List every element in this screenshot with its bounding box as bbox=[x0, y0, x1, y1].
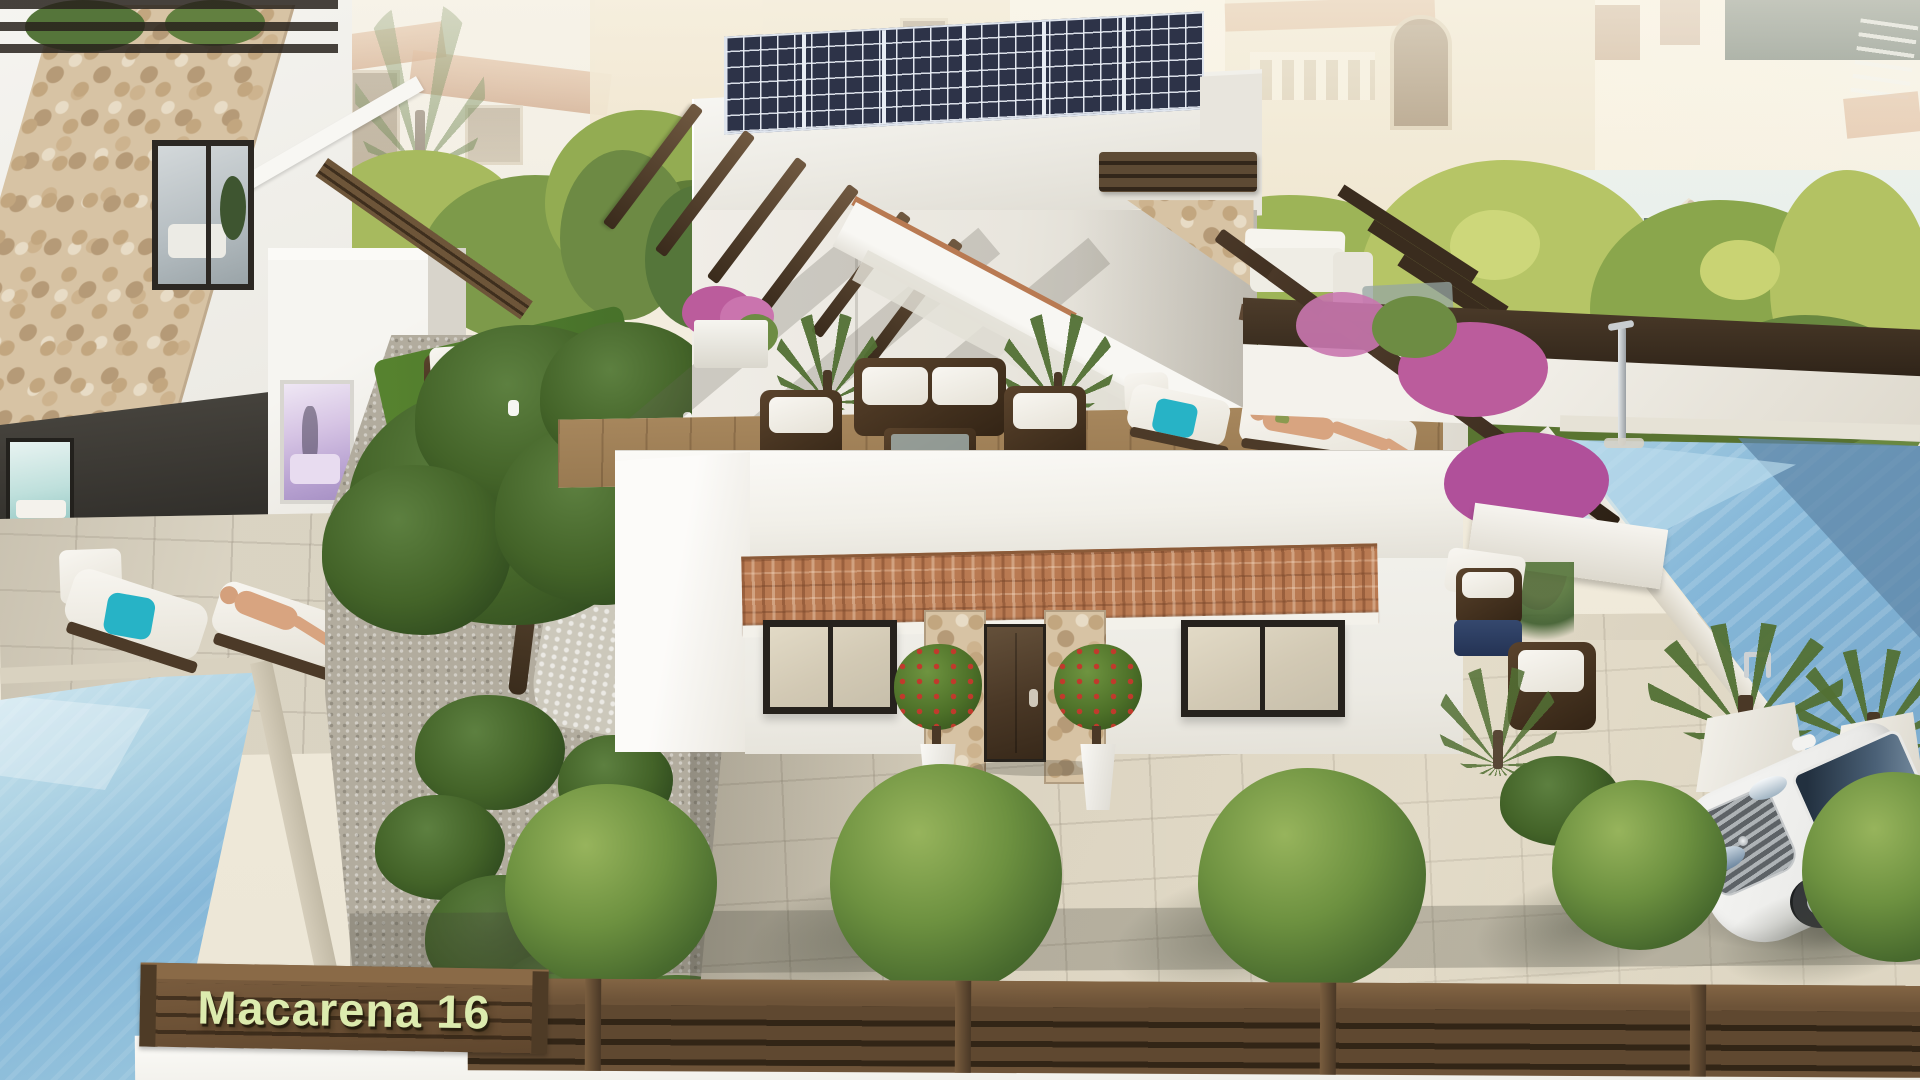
flower-planter bbox=[682, 286, 778, 370]
fence-post bbox=[585, 979, 601, 1071]
round-bush bbox=[1198, 768, 1426, 990]
round-bush bbox=[505, 784, 717, 989]
stair-bench bbox=[1099, 152, 1257, 192]
rattan-loveseat bbox=[854, 358, 1006, 436]
window-mullion bbox=[1260, 627, 1265, 710]
window bbox=[1181, 620, 1345, 717]
garden-bush bbox=[415, 695, 565, 810]
interior-bed bbox=[16, 500, 66, 518]
outdoor-shower bbox=[1618, 326, 1626, 446]
window-mullion bbox=[828, 627, 833, 707]
balcony-railing bbox=[0, 0, 338, 66]
living-room-window bbox=[152, 140, 254, 290]
window-mullion bbox=[206, 146, 211, 284]
door-handle bbox=[1029, 689, 1038, 707]
planter-box bbox=[694, 320, 768, 368]
door-panel-line bbox=[1015, 633, 1017, 753]
round-bush bbox=[1552, 780, 1727, 950]
sign-fence-panel: Macarena 16 bbox=[139, 962, 548, 1053]
wicker-cube-seat bbox=[1456, 568, 1522, 626]
round-bush bbox=[830, 764, 1062, 994]
interior-sofa bbox=[168, 224, 226, 258]
fence-post bbox=[955, 981, 971, 1073]
interior-plant bbox=[220, 176, 246, 240]
pergola-greens bbox=[1372, 296, 1457, 358]
roof-parapet-return bbox=[1200, 73, 1262, 218]
villa-render-scene: Macarena 16 bbox=[0, 0, 1920, 1080]
front-door bbox=[984, 624, 1046, 762]
street-fence bbox=[468, 978, 1920, 1078]
interior-bed bbox=[290, 454, 340, 484]
window bbox=[763, 620, 897, 714]
foliage-blob bbox=[1700, 240, 1780, 300]
fence-post bbox=[1690, 985, 1706, 1077]
shower-base bbox=[1604, 438, 1644, 448]
fence-post bbox=[1320, 983, 1336, 1075]
facade-corner-wall bbox=[615, 452, 750, 752]
development-name-sign: Macarena 16 bbox=[139, 974, 548, 1045]
garden-tree-canopy bbox=[322, 465, 512, 635]
bollard-light bbox=[508, 400, 519, 416]
car-badge bbox=[1738, 836, 1748, 846]
